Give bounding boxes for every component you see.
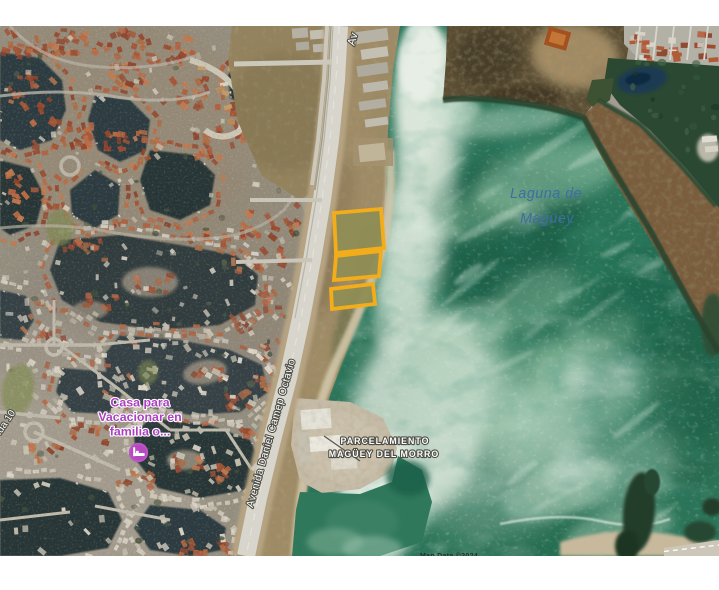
svg-text:MAGÜEY DEL MORRO: MAGÜEY DEL MORRO [329,449,440,459]
svg-text:Vacacionar en: Vacacionar en [98,410,181,424]
svg-text:familia o...: familia o... [110,425,171,439]
svg-text:Laguna de: Laguna de [510,186,582,202]
svg-text:Magüey: Magüey [520,211,574,227]
svg-text:Casa para: Casa para [110,396,169,410]
svg-text:PARCELAMIENTO: PARCELAMIENTO [341,436,430,446]
